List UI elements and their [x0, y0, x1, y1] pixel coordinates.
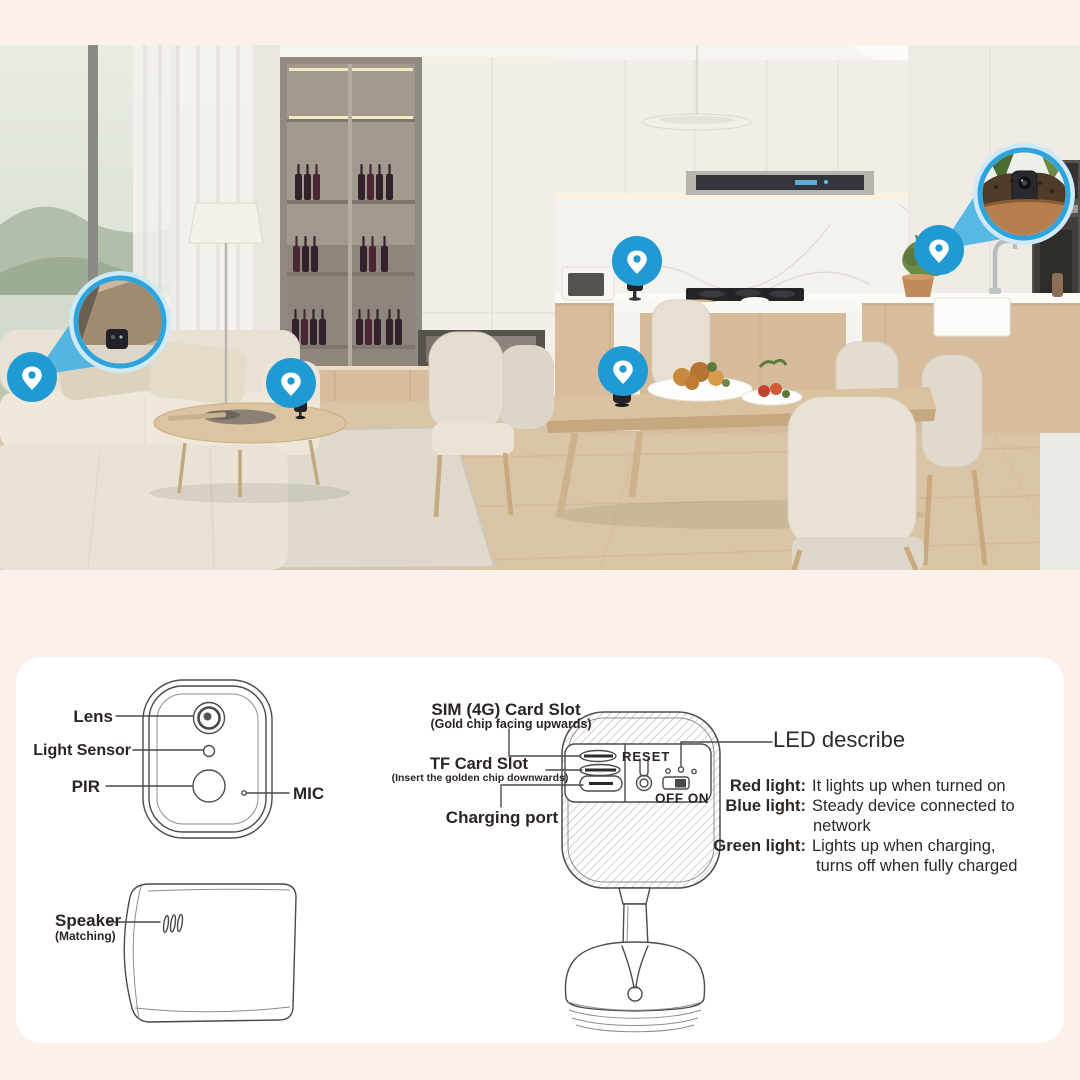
soap-bottle — [1052, 273, 1063, 297]
led-red-text: It lights up when turned on — [812, 776, 1006, 796]
range-hood — [686, 171, 874, 195]
room-photo — [0, 45, 1080, 570]
led-blue-text: Steady device connected to — [812, 796, 1015, 816]
label-light-sensor: Light Sensor — [23, 742, 131, 760]
led-red-row: Red light: It lights up when turned on — [640, 776, 1006, 796]
led-blue-label: Blue light: — [640, 796, 806, 816]
location-pin-icon — [914, 225, 964, 275]
led-green-row: Green light: Lights up when charging, — [640, 836, 995, 856]
magnifier-callout-right — [976, 146, 1072, 242]
location-pin-icon — [266, 358, 316, 408]
countertop-appliance — [562, 267, 614, 300]
label-charging-port: Charging port — [402, 808, 602, 828]
label-sim-note: (Gold chip facing upwards) — [411, 717, 611, 731]
led-describe-title: LED describe — [773, 727, 905, 753]
led-red-label: Red light: — [640, 776, 806, 796]
location-pin-icon — [7, 352, 57, 402]
label-pir: PIR — [20, 777, 100, 797]
label-mic: MIC — [293, 784, 324, 804]
location-pin-icon — [612, 236, 662, 286]
led-green-cont: turns off when fully charged — [816, 856, 1017, 876]
location-pin-icon — [598, 346, 648, 396]
label-lens: Lens — [23, 707, 113, 727]
led-green-text: Lights up when charging, — [812, 836, 995, 856]
dining-chair-foreground — [788, 397, 924, 570]
label-tf-note: (Insert the golden chip downwards) — [380, 772, 580, 784]
led-blue-cont: network — [813, 816, 871, 836]
led-green-label: Green light: — [640, 836, 806, 856]
led-blue-row: Blue light: Steady device connected to — [640, 796, 1015, 816]
label-speaker: Speaker — [55, 911, 121, 931]
poster-canvas: Lens Light Sensor PIR MIC Speaker (Match… — [0, 0, 1080, 1080]
label-reset: RESET — [622, 749, 670, 764]
label-speaker-note: (Matching) — [55, 929, 116, 943]
